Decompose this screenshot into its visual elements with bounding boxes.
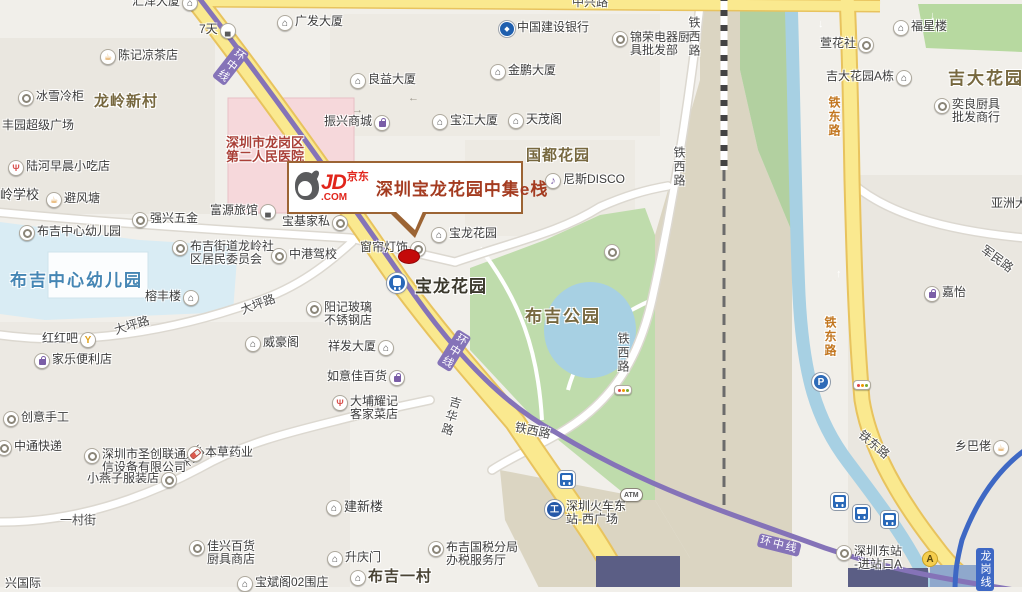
dot-icon [306,301,322,317]
dot-icon [132,212,148,228]
poi-label: 宝斌阁02围庄 [255,576,328,589]
map-page: { "callout": { "logo_jd": "JD", "logo_ji… [0,0,1022,587]
poi-label: 嘉怡 [942,286,966,299]
poi-label: 阳记玻璃不锈钢店 [324,301,372,327]
bar-glyph: Y [85,336,92,345]
map-label: 宝龙花园 [415,272,487,297]
map-poi[interactable]: ☕避风塘 [44,192,100,208]
map-poi[interactable]: 榕丰楼⌂ [145,290,201,306]
bed-icon: ▄ [260,204,276,220]
map-poi[interactable]: 强兴五金 [130,212,198,228]
bldg-icon: ⌂ [182,0,198,11]
map-poi[interactable] [879,511,900,528]
map-poi[interactable]: 乡巴佬☕ [955,440,1011,456]
poi-label: 家乐便利店 [52,353,112,366]
poi-label: 布吉一村 [368,570,432,583]
dot-icon [189,540,205,556]
bag-icon [34,353,50,369]
bldg-icon: ⌂ [183,290,199,306]
map-poi[interactable] [556,471,577,488]
poi-label: 乡巴佬 [955,440,991,453]
map-poi[interactable]: 布吉国税分局办税服务厅 [426,541,518,567]
bldg-glyph: ⌂ [437,118,443,127]
map-poi[interactable]: ⌂升庆门 [325,551,381,567]
food-glyph: Ψ [12,164,19,173]
map-poi[interactable]: 中通快递 [0,440,62,456]
map-label: 铁东路 [822,316,839,358]
cup-icon: ☕ [993,440,1009,456]
map-label: ← [408,92,419,104]
bldg-icon: ⌂ [237,576,253,592]
map-poi[interactable] [851,380,873,390]
poi-label: 兴国际 [5,577,41,590]
bldg-glyph: ⌂ [436,231,442,240]
map-poi[interactable]: 红红吧Y [42,332,98,348]
bldg-glyph: ⌂ [187,0,193,8]
map-label: 国都花园 [526,144,590,165]
poi-label: 金鹏大厦 [508,64,556,77]
map-poi[interactable]: ⌂宝江大厦 [430,114,498,130]
map-poi[interactable]: 丰园超级广场 [2,119,74,132]
map-poi[interactable]: 吉大花园A栋⌂ [826,70,914,86]
poi-label: 丰园超级广场 [2,119,74,132]
poi-label: 小燕子服装店 [87,472,159,485]
bldg-icon: ⌂ [350,73,366,89]
map-poi[interactable]: ◆中国建设银行 [497,21,589,37]
bldg-glyph: ⌂ [513,117,519,126]
bldg-glyph: ⌂ [332,555,338,564]
atm-glyph: ATM [624,491,639,500]
bldg-glyph: ⌂ [250,340,256,349]
map-poi[interactable]: Ψ陆河早晨小吃店 [6,160,110,176]
map-poi[interactable] [602,244,622,260]
map-poi[interactable]: 小燕子服装店 [87,472,179,488]
map-label: 布吉公园 [525,302,601,327]
poi-label: 天茂阁 [526,113,562,126]
poi-label: 振兴商城 [324,115,372,128]
map-poi[interactable]: 布吉中心幼儿园 [17,225,121,241]
cup-icon: ☕ [46,192,62,208]
poi-label: 宝基家私 [282,215,330,228]
poi-label: 创意手工 [21,411,69,424]
poi-label: 吉大花园A栋 [826,70,894,83]
food-glyph: Ψ [336,399,343,408]
poi-label: 威豪阁 [263,336,299,349]
poi-label: 深圳东站-进站口A [854,545,902,571]
dot-icon [161,472,177,488]
poi-label: 广发大厦 [295,15,343,28]
poi-label: 锦荣电器厨具批发部 [630,31,690,57]
map-poi[interactable]: 工深圳火车东站-西广场 [543,500,626,526]
jd-logo-jingdong: 京东 [347,172,369,183]
bed-icon: ▄ [220,23,236,39]
map-poi[interactable]: 汇泽大厦⌂ [132,0,200,11]
bldg-icon: ⌂ [245,336,261,352]
map-poi[interactable]: 布吉街道龙岭社区居民委员会 [170,240,274,266]
dot-icon [612,31,628,47]
map-poi[interactable]: 佳兴百货厨具商店 [187,540,255,566]
poi-label: 尼斯DISCO [563,173,625,186]
poi-label: 亚洲大 [991,197,1022,210]
food-icon: Ψ [8,160,24,176]
map-poi[interactable]: 创意手工 [1,411,69,427]
poi-label: 奕良厨具批发商行 [952,98,1000,124]
bldg-glyph: ⌂ [188,294,194,303]
bus-icon [558,471,575,488]
poi-label: 深圳火车东站-西广场 [566,500,626,526]
map-label: ↓ [818,18,824,30]
poi-label: 强兴五金 [150,212,198,225]
bank-icon: ◆ [499,21,515,37]
poi-label: 中港驾校 [289,248,337,261]
map-poi[interactable]: 中港驾校 [269,248,337,264]
poi-label: 红红吧 [42,332,78,345]
bldg-glyph: ⌂ [331,504,337,513]
poi-label: 如意佳百货 [327,370,387,383]
bus-icon [853,505,870,522]
map-poi[interactable]: ⌂布吉一村 [348,570,432,586]
poi-label: 本草药业 [205,446,253,459]
bag-icon [374,115,390,131]
dot-icon [84,448,100,464]
map-poi[interactable]: 深圳市龙岗区第二人民医院 [226,136,304,164]
map-poi[interactable]: 嘉怡 [922,286,966,302]
bldg-icon: ⌂ [893,20,909,36]
bldg-icon: ⌂ [378,340,394,356]
map-poi[interactable]: ♪尼斯DISCO [543,173,625,189]
map-poi[interactable]: ⌂福星楼 [891,20,947,36]
signal-icon [853,380,871,390]
map-label: 龙岗线 [976,548,994,591]
atm-icon: ATM [620,488,643,502]
dot-icon [332,215,348,231]
bldg-glyph: ⌂ [901,74,907,83]
dot-icon [836,545,852,561]
bar-icon: Y [80,332,96,348]
dot-icon [858,37,874,53]
poi-label: 祥发大厦 [328,340,376,353]
map-poi[interactable]: ⌂良益大厦 [348,73,416,89]
jd-logo-jd: JD [321,172,346,193]
dot-icon [428,541,444,557]
map-poi[interactable]: ⌂金鹏大厦 [488,64,556,80]
cup-glyph: ☕ [997,444,1005,453]
dot-icon [934,98,950,114]
map-label: 铁西路 [615,332,632,374]
poi-label: 佳兴百货厨具商店 [207,540,255,566]
bldg-glyph: ⌂ [898,24,904,33]
mic-glyph: ♪ [550,177,556,186]
map-poi[interactable]: ⌂宝龙花园 [429,227,497,243]
pill-icon [187,446,203,462]
dot-icon [0,440,12,456]
map-label: 一村街 [60,511,96,528]
cup-glyph: ☕ [104,53,112,62]
jd-logo-text: JD 京东 .COM [321,172,369,203]
signal-icon [614,385,632,395]
bus-icon [881,511,898,528]
bldg-icon: ⌂ [350,570,366,586]
destination-marker[interactable] [398,249,420,264]
bldg-glyph: ⌂ [242,580,248,589]
poi-label: 中通快递 [14,440,62,453]
poi-label: 萱花社 [820,37,856,50]
poi-label: 冰雪冷柜 [36,90,84,103]
map-poi[interactable]: 萱花社 [820,37,876,53]
map-poi[interactable]: 如意佳百货 [327,370,407,386]
map-poi[interactable]: 岭学校 [0,188,39,201]
bldg-glyph: ⌂ [355,574,361,583]
bldg-icon: ⌂ [896,70,912,86]
map-label: 中兴路 [572,0,608,10]
exitA-icon: A [922,551,938,567]
map-poi[interactable]: 祥发大厦⌂ [328,340,396,356]
jd-dog-icon [295,172,319,200]
metro-icon [387,273,407,293]
map-poi[interactable]: 家乐便利店 [32,353,112,369]
map-poi[interactable]: ⌂宝斌阁02围庄 [235,576,328,592]
poi-label: 富源旅馆 [210,204,258,217]
exitA-glyph: A [926,555,933,564]
map-poi[interactable]: 阳记玻璃不锈钢店 [304,301,372,327]
map-poi[interactable]: ⌂广发大厦 [275,15,343,31]
map-poi[interactable]: 本草药业 [185,446,253,462]
map-poi[interactable]: 奕良厨具批发商行 [932,98,1000,124]
bldg-icon: ⌂ [277,15,293,31]
cup-icon: ☕ [100,49,116,65]
parking-icon: P [812,373,830,391]
map-poi[interactable]: ☕陈记凉茶店 [98,49,178,65]
rail-icon: 工 [545,500,564,519]
callout-title: 深圳宝龙花园中集e栈 [376,175,548,200]
poi-label: 避风塘 [64,192,100,205]
poi-label: 中国建设银行 [517,21,589,34]
poi-label: 汇泽大厦 [132,0,180,8]
poi-label: 宝龙花园 [449,227,497,240]
map-poi[interactable]: 宝基家私 [282,215,350,231]
map-poi[interactable] [385,273,409,293]
map-label: 铁西路 [671,146,688,188]
food-icon: Ψ [332,395,348,411]
dot-icon [18,90,34,106]
poi-label: 大埔耀记客家菜店 [350,395,398,421]
map-poi[interactable]: 锦荣电器厨具批发部 [610,31,690,57]
map-viewport[interactable]: JD 京东 .COM 深圳宝龙花园中集e栈 汇泽大厦⌂7天▄⌂广发大厦☕陈记凉茶… [0,0,1022,587]
dot-icon [172,240,188,256]
bldg-glyph: ⌂ [495,68,501,77]
bag-icon [389,370,405,386]
bldg-glyph: ⌂ [383,344,389,353]
map-label: ↑ [836,268,842,280]
bed-glyph: ▄ [265,208,271,217]
poi-label: 宝江大厦 [450,114,498,127]
dot-icon [19,225,35,241]
cup-glyph: ☕ [50,196,58,205]
bldg-icon: ⌂ [431,227,447,243]
map-poi[interactable]: 深圳东站-进站口A [834,545,902,571]
rail-glyph: 工 [550,505,559,514]
bag-icon [924,286,940,302]
poi-label: 深圳市龙岗区第二人民医院 [226,136,304,164]
bldg-icon: ⌂ [432,114,448,130]
map-poi[interactable]: P [810,373,832,391]
map-poi[interactable]: 冰雪冷柜 [16,90,84,106]
dot-icon [604,244,620,260]
bldg-glyph: ⌂ [282,19,288,28]
poi-label: 建新楼 [344,500,383,513]
poi-label: 7天 [199,23,218,36]
bed-glyph: ▄ [225,27,231,36]
map-label: 吉大花园 [948,64,1022,89]
dot-icon [3,411,19,427]
poi-label: 布吉中心幼儿园 [37,225,121,238]
parking-glyph: P [818,378,825,387]
bank-glyph: ◆ [504,25,509,34]
bus-icon [831,493,848,510]
poi-label: 布吉国税分局办税服务厅 [446,541,518,567]
bldg-icon: ⌂ [327,551,343,567]
poi-label: 陈记凉茶店 [118,49,178,62]
bldg-icon: ⌂ [508,113,524,129]
map-poi[interactable]: ATM [618,488,645,502]
map-label: 布吉中心幼儿园 [10,266,143,291]
map-label: ↓ [692,28,698,40]
jd-callout[interactable]: JD 京东 .COM 深圳宝龙花园中集e栈 [287,161,523,214]
map-poi[interactable] [829,493,850,510]
poi-label: 布吉街道龙岭社区居民委员会 [190,240,274,266]
map-poi[interactable]: ⌂建新楼 [324,500,383,516]
map-poi[interactable] [851,505,872,522]
bldg-glyph: ⌂ [355,77,361,86]
map-poi[interactable]: A [920,551,940,567]
poi-label: 福星楼 [911,20,947,33]
map-poi[interactable]: Ψ大埔耀记客家菜店 [330,395,398,421]
map-poi[interactable]: 7天▄ [199,23,238,39]
map-label: 龙岭新村 [94,90,158,111]
map-poi[interactable] [612,385,634,395]
map-poi[interactable]: 振兴商城 [324,115,392,131]
jd-logo: JD 京东 .COM [295,172,369,203]
bldg-icon: ⌂ [326,500,342,516]
map-poi[interactable]: 兴国际 [5,577,41,590]
poi-label: 良益大厦 [368,73,416,86]
map-poi[interactable]: 富源旅馆▄ [210,204,278,220]
poi-label: 榕丰楼 [145,290,181,303]
jd-logo-com: .COM [321,193,369,203]
map-poi[interactable]: 亚洲大 [991,197,1022,210]
poi-label: 陆河早晨小吃店 [26,160,110,173]
map-label: 铁东路 [826,96,843,138]
map-poi[interactable]: ⌂天茂阁 [506,113,562,129]
poi-label: 升庆门 [345,551,381,564]
dot-icon [271,248,287,264]
bldg-icon: ⌂ [490,64,506,80]
map-poi[interactable]: ⌂威豪阁 [243,336,299,352]
poi-label: 岭学校 [0,188,39,201]
